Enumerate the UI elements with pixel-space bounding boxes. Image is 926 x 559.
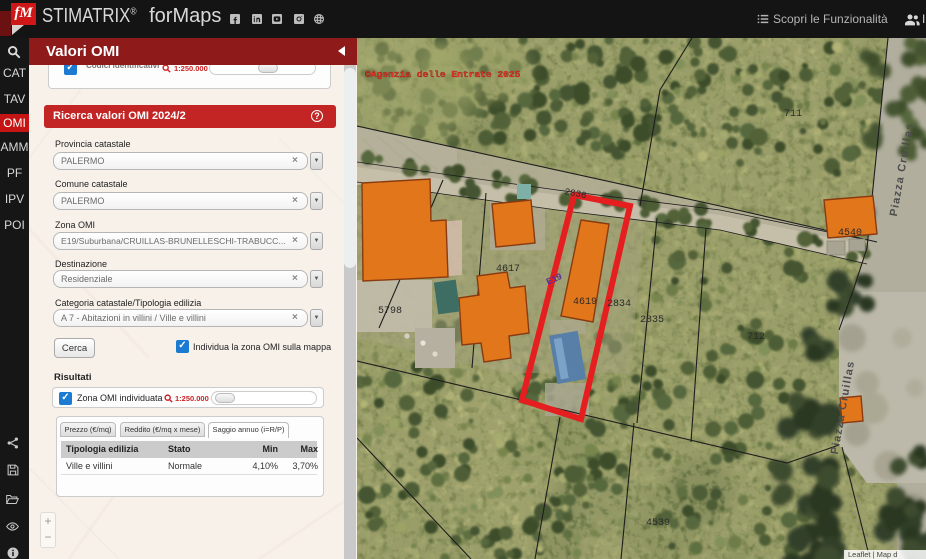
- svg-text:©Agenzia delle Entrate 2025: ©Agenzia delle Entrate 2025: [365, 69, 521, 80]
- svg-text:2835: 2835: [640, 315, 664, 326]
- svg-text:4617: 4617: [496, 264, 520, 275]
- svg-text:2834: 2834: [607, 299, 631, 310]
- svg-text:5798: 5798: [378, 306, 402, 317]
- svg-text:4619: 4619: [573, 297, 597, 308]
- svg-text:4540: 4540: [838, 228, 862, 239]
- svg-text:4539: 4539: [646, 518, 670, 529]
- svg-text:Leaflet | Map d: Leaflet | Map d: [848, 550, 897, 559]
- svg-text:711: 711: [784, 109, 802, 120]
- svg-text:712: 712: [747, 332, 765, 343]
